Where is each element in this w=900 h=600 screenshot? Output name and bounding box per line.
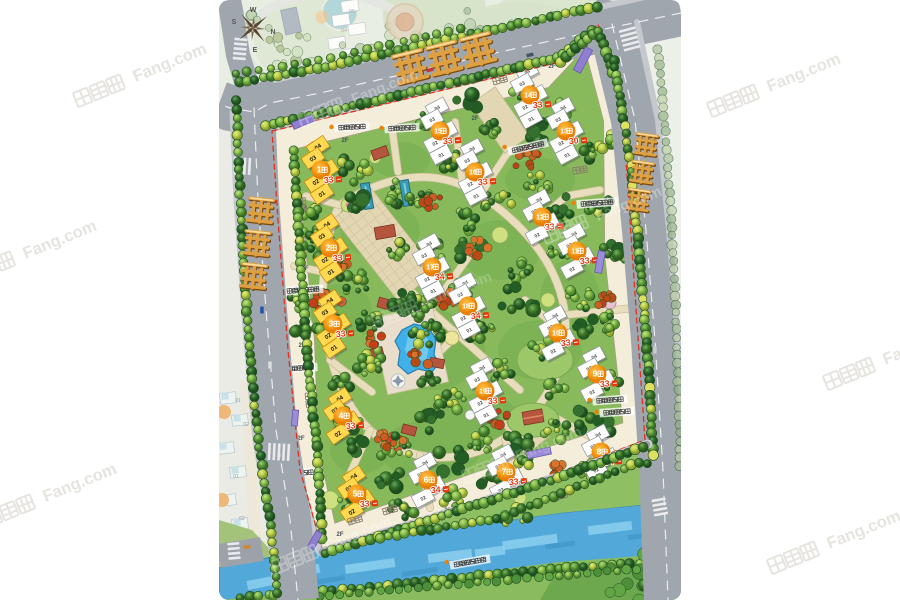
svg-text:W: W — [250, 7, 257, 14]
svg-text:2F: 2F — [341, 138, 348, 144]
svg-text:2: 2 — [326, 243, 331, 253]
svg-text:E: E — [253, 47, 258, 54]
svg-text:33: 33 — [599, 378, 610, 389]
svg-text:2F: 2F — [548, 64, 555, 70]
svg-text:01: 01 — [233, 474, 239, 480]
svg-text:33: 33 — [345, 420, 356, 431]
svg-text:1: 1 — [317, 165, 322, 175]
svg-text:02: 02 — [239, 516, 245, 522]
svg-text:33: 33 — [323, 174, 334, 185]
svg-text:01: 01 — [235, 398, 241, 404]
svg-text:2F: 2F — [471, 116, 478, 122]
svg-text:33: 33 — [442, 135, 453, 146]
svg-text:34: 34 — [430, 484, 441, 495]
svg-text:S: S — [232, 19, 237, 26]
svg-text:4: 4 — [339, 411, 344, 421]
svg-text:5: 5 — [353, 489, 358, 499]
svg-text:8: 8 — [597, 447, 602, 457]
svg-text:33: 33 — [579, 255, 590, 266]
svg-text:33: 33 — [359, 498, 370, 509]
svg-text:30: 30 — [568, 135, 579, 146]
svg-text:3: 3 — [329, 319, 334, 329]
svg-text:33: 33 — [487, 395, 498, 406]
svg-text:02: 02 — [243, 422, 249, 428]
svg-text:6: 6 — [424, 475, 429, 485]
svg-text:33: 33 — [560, 337, 571, 348]
svg-text:33: 33 — [477, 176, 488, 187]
svg-text:33: 33 — [332, 252, 343, 263]
svg-text:34: 34 — [434, 271, 445, 282]
svg-text:33: 33 — [532, 99, 543, 110]
svg-text:34: 34 — [470, 310, 481, 321]
svg-text:33: 33 — [335, 328, 346, 339]
svg-text:9: 9 — [593, 369, 598, 379]
svg-text:N: N — [270, 29, 275, 36]
